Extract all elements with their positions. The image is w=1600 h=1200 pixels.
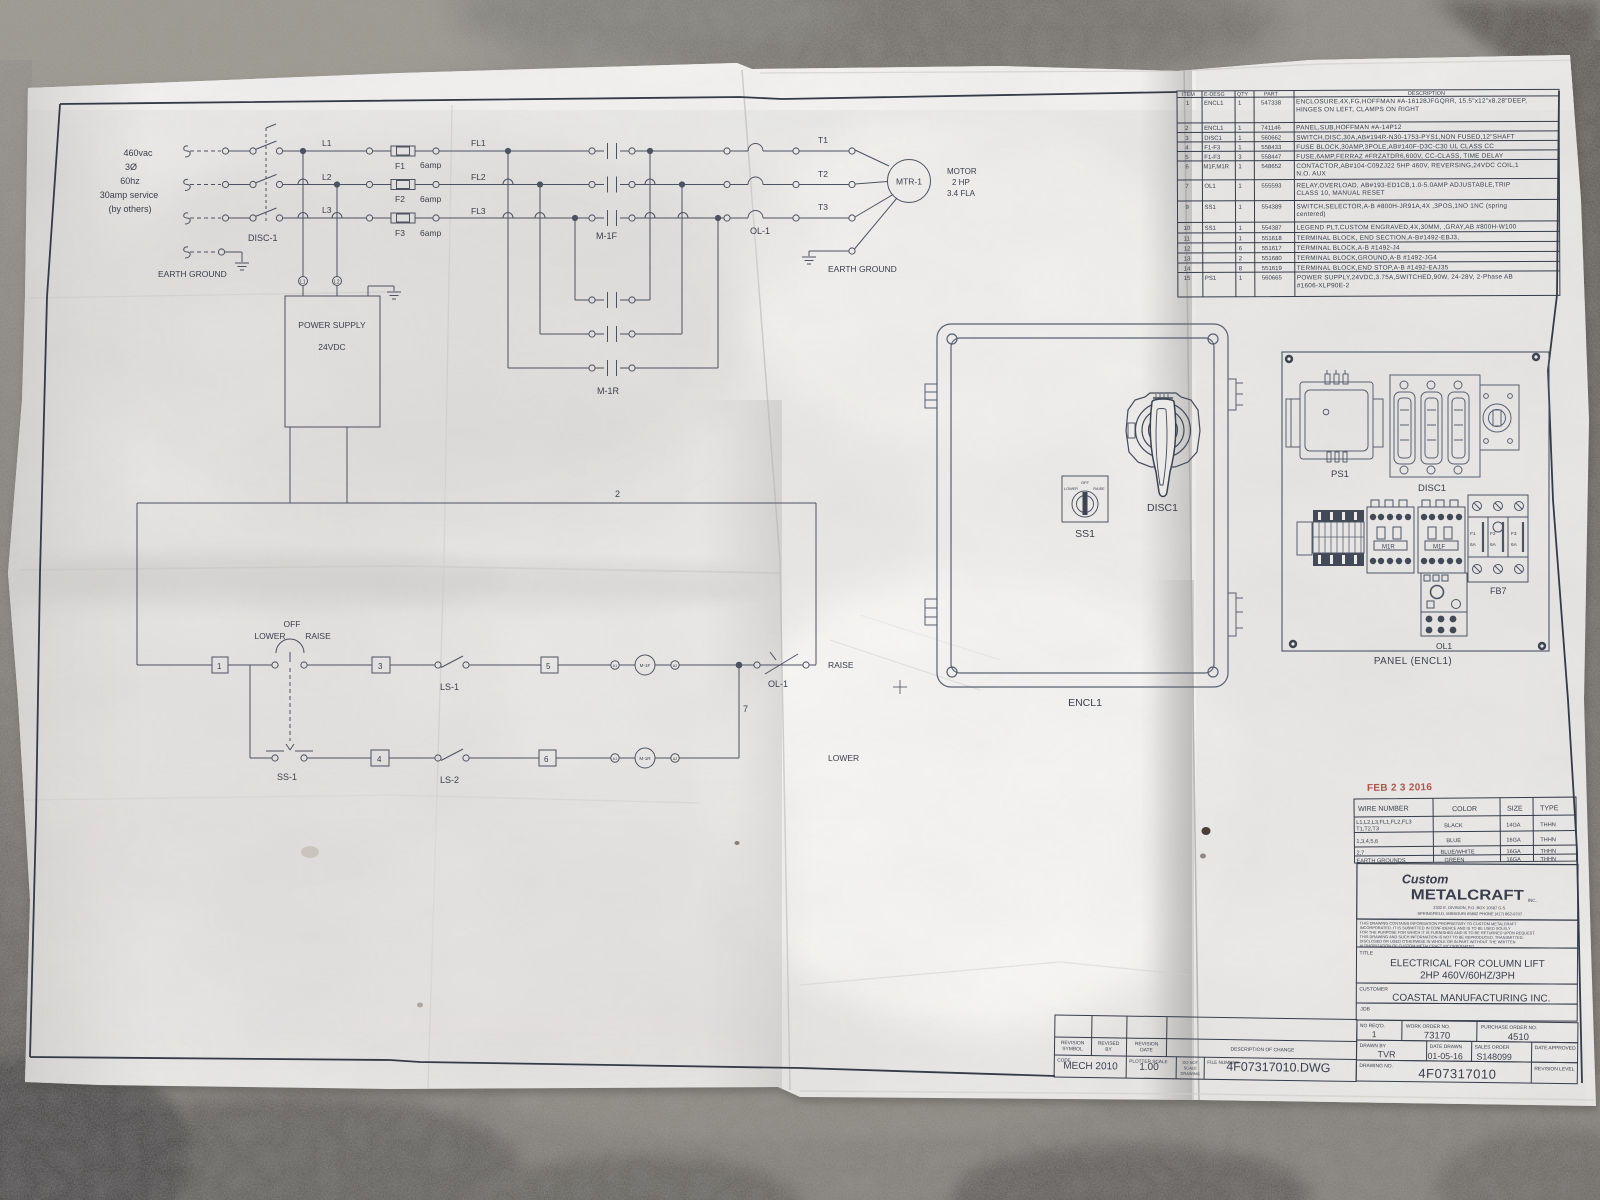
svg-text:BLUE/WHITE: BLUE/WHITE xyxy=(1440,849,1475,855)
svg-text:S148099: S148099 xyxy=(1477,1051,1512,1061)
svg-text:A1: A1 xyxy=(613,757,617,761)
svg-text:DISC1: DISC1 xyxy=(1204,136,1222,142)
svg-text:4510: 4510 xyxy=(1508,1032,1529,1043)
svg-text:16GA: 16GA xyxy=(1506,849,1521,855)
svg-text:THHN: THHN xyxy=(1540,822,1556,828)
svg-text:RAISE: RAISE xyxy=(1093,487,1105,491)
svg-text:LS-2: LS-2 xyxy=(440,775,459,785)
svg-text:ENCL1: ENCL1 xyxy=(1204,126,1224,132)
svg-text:1: 1 xyxy=(1372,1029,1377,1039)
svg-text:ELECTRICAL FOR COLUMN LIFT: ELECTRICAL FOR COLUMN LIFT xyxy=(1390,958,1545,970)
svg-text:3: 3 xyxy=(378,662,383,671)
svg-text:POWER SUPPLY: POWER SUPPLY xyxy=(298,320,366,330)
svg-text:PANEL (ENCL1): PANEL (ENCL1) xyxy=(1374,656,1452,667)
svg-text:551618: 551618 xyxy=(1262,236,1283,242)
svg-text:FUSE,6AMP,FERRAZ #FRZATDR6,60: FUSE,6AMP,FERRAZ #FRZATDR6,600V, CC-CLAS… xyxy=(1296,153,1504,161)
svg-text:SCALE: SCALE xyxy=(1184,1065,1198,1070)
svg-text:SPRINGFIELD, MISSOURI 65802: SPRINGFIELD, MISSOURI 65802 PHONE (417) … xyxy=(1417,911,1523,917)
svg-text:558447: 558447 xyxy=(1261,155,1282,161)
svg-text:REVISION LEVEL: REVISION LEVEL xyxy=(1534,1066,1574,1072)
svg-text:centered): centered) xyxy=(1297,211,1326,218)
svg-text:CUSTOMER: CUSTOMER xyxy=(1359,987,1388,993)
svg-text:DATE APPROVED: DATE APPROVED xyxy=(1535,1045,1576,1052)
svg-text:6A: 6A xyxy=(1490,542,1497,548)
svg-text:2332 E. DIVISION, P.O. BOX 105: 2332 E. DIVISION, P.O. BOX 10587 G.S. xyxy=(1433,905,1506,910)
svg-text:L2: L2 xyxy=(322,172,332,182)
svg-text:741146: 741146 xyxy=(1261,126,1281,132)
svg-text:548652: 548652 xyxy=(1261,164,1282,170)
svg-text:DATE: DATE xyxy=(1140,1047,1154,1053)
svg-text:6amp: 6amp xyxy=(420,160,442,170)
svg-text:12: 12 xyxy=(1184,246,1191,252)
svg-text:DESCRIPTION OF CHANGE: DESCRIPTION OF CHANGE xyxy=(1231,1047,1296,1054)
svg-text:HINGES ON LEFT, CLAMPS ON RIGH: HINGES ON LEFT, CLAMPS ON RIGHT xyxy=(1296,106,1419,114)
svg-text:METALCRAFT: METALCRAFT xyxy=(1411,887,1524,904)
svg-text:ENCLOSURE,4X,FG,HOFFMAN #A-16: ENCLOSURE,4X,FG,HOFFMAN #A-16128JFGQRR, … xyxy=(1296,97,1527,105)
svg-text:M-1R: M-1R xyxy=(639,756,651,761)
svg-text:560665: 560665 xyxy=(1262,276,1283,282)
svg-text:10: 10 xyxy=(1184,226,1191,232)
svg-text:T1,T2,T3: T1,T2,T3 xyxy=(1356,826,1379,832)
svg-text:1: 1 xyxy=(217,662,222,671)
svg-text:1.00: 1.00 xyxy=(1139,1062,1159,1073)
svg-text:DRAWING: DRAWING xyxy=(1181,1071,1200,1076)
svg-text:N.O. AUX: N.O. AUX xyxy=(1296,170,1326,177)
svg-text:MECH 2010: MECH 2010 xyxy=(1063,1061,1118,1073)
svg-text:FL2: FL2 xyxy=(471,172,486,182)
svg-text:14: 14 xyxy=(1184,266,1191,272)
svg-text:FUSE BLOCK,30AMP,3POLE,AB#140: FUSE BLOCK,30AMP,3POLE,AB#140F-D3C-C30 U… xyxy=(1296,143,1494,151)
svg-text:TITLE: TITLE xyxy=(1360,951,1374,957)
svg-text:73170: 73170 xyxy=(1424,1030,1451,1041)
svg-text:15: 15 xyxy=(1184,276,1191,282)
svg-text:6amp: 6amp xyxy=(420,228,442,238)
svg-text:POWER SUPPLY,24VDC,3.75A,SWIT: POWER SUPPLY,24VDC,3.75A,SWITCHED,90W, 2… xyxy=(1297,274,1513,282)
svg-text:3.4 FLA: 3.4 FLA xyxy=(947,189,976,198)
svg-text:Custom: Custom xyxy=(1402,872,1449,886)
svg-text:L3: L3 xyxy=(322,205,332,215)
svg-text:F1-F3: F1-F3 xyxy=(1204,145,1221,151)
svg-text:3Ø: 3Ø xyxy=(125,162,137,172)
svg-text:16GA: 16GA xyxy=(1507,857,1522,863)
svg-text:30amp service: 30amp service xyxy=(100,190,159,200)
svg-text:6amp: 6amp xyxy=(420,194,442,204)
svg-text:TERMINAL BLOCK,A-B #1492-J4: TERMINAL BLOCK,A-B #1492-J4 xyxy=(1297,245,1400,252)
svg-text:L1,L2,L3,FL1,FL2,FL3: L1,L2,L3,FL1,FL2,FL3 xyxy=(1356,819,1411,825)
svg-text:FB7: FB7 xyxy=(1490,586,1507,596)
svg-text:6: 6 xyxy=(544,755,549,764)
svg-text:ENCL1: ENCL1 xyxy=(1068,697,1102,709)
svg-text:DISC-1: DISC-1 xyxy=(248,233,278,243)
svg-text:6A: 6A xyxy=(1511,542,1518,548)
svg-text:(by others): (by others) xyxy=(108,204,151,214)
svg-text:551619: 551619 xyxy=(1262,266,1283,272)
svg-text:5: 5 xyxy=(546,662,551,671)
svg-text:L2: L2 xyxy=(334,280,340,286)
svg-text:THHN: THHN xyxy=(1540,849,1556,855)
svg-text:F2: F2 xyxy=(1490,531,1496,537)
svg-text:COASTAL MANUFACTURING INC.: COASTAL MANUFACTURING INC. xyxy=(1392,993,1550,1005)
svg-text:SYMBOL: SYMBOL xyxy=(1062,1046,1083,1052)
svg-text:BY: BY xyxy=(1105,1047,1112,1053)
svg-text:LOWER: LOWER xyxy=(1064,487,1078,491)
svg-text:PURCHASE ORDER NO.: PURCHASE ORDER NO. xyxy=(1481,1025,1537,1032)
svg-text:FL3: FL3 xyxy=(471,206,486,216)
svg-text:REVISION: REVISION xyxy=(1135,1041,1159,1047)
svg-text:MTR-1: MTR-1 xyxy=(896,177,922,187)
svg-text:TERMINAL BLOCK,GROUND,A-B #1: TERMINAL BLOCK,GROUND,A-B #1492-JG4 xyxy=(1297,254,1437,262)
svg-text:JOB: JOB xyxy=(1360,1007,1370,1013)
svg-text:F2: F2 xyxy=(395,194,405,204)
svg-text:SIZE: SIZE xyxy=(1507,806,1523,813)
svg-text:RAISE: RAISE xyxy=(828,660,854,670)
svg-text:T3: T3 xyxy=(818,202,828,212)
svg-text:LOWER: LOWER xyxy=(254,631,285,641)
svg-text:01-05-16: 01-05-16 xyxy=(1428,1051,1463,1061)
svg-text:2,7: 2,7 xyxy=(1356,850,1364,856)
svg-text:SALES ORDER: SALES ORDER xyxy=(1475,1044,1510,1050)
svg-text:PART: PART xyxy=(1264,92,1279,98)
svg-text:OFF: OFF xyxy=(284,619,301,629)
svg-text:OL1: OL1 xyxy=(1436,641,1452,651)
svg-text:DESCRIPTION: DESCRIPTION xyxy=(1408,91,1445,97)
svg-text:4F07317010: 4F07317010 xyxy=(1418,1066,1496,1082)
svg-text:F3: F3 xyxy=(395,228,405,238)
svg-text:PS1: PS1 xyxy=(1205,276,1217,282)
svg-text:SS1: SS1 xyxy=(1075,528,1095,540)
svg-text:QTY: QTY xyxy=(1237,92,1249,98)
svg-text:DRAWING NO.: DRAWING NO. xyxy=(1359,1063,1393,1069)
svg-text:T2: T2 xyxy=(818,169,828,179)
svg-text:OFF: OFF xyxy=(1081,480,1090,485)
svg-text:460vac: 460vac xyxy=(123,148,153,158)
svg-text:EARTH GROUND: EARTH GROUND xyxy=(158,269,227,279)
svg-text:OL-1: OL-1 xyxy=(768,679,788,689)
svg-text:M-1F: M-1F xyxy=(640,663,651,668)
svg-text:7: 7 xyxy=(743,704,748,714)
svg-text:DATE DRAWN: DATE DRAWN xyxy=(1430,1044,1463,1050)
svg-text:T1: T1 xyxy=(818,135,828,145)
svg-text:WORK ORDER NO.: WORK ORDER NO. xyxy=(1406,1024,1450,1031)
svg-text:THHN: THHN xyxy=(1540,837,1556,843)
svg-text:4F07317010.DWG: 4F07317010.DWG xyxy=(1226,1060,1330,1076)
svg-text:TERMINAL BLOCK,END STOP,A-B: TERMINAL BLOCK,END STOP,A-B #1492-EAJ35 xyxy=(1297,264,1449,272)
svg-text:DISC1: DISC1 xyxy=(1418,483,1446,494)
svg-text:INC.: INC. xyxy=(1528,898,1537,903)
svg-text:ITEM: ITEM xyxy=(1182,92,1195,98)
svg-text:REVISED: REVISED xyxy=(1098,1041,1120,1047)
svg-text:REVISION: REVISION xyxy=(1061,1040,1085,1046)
svg-text:SS1: SS1 xyxy=(1204,205,1216,211)
svg-text:558433: 558433 xyxy=(1261,145,1282,151)
svg-text:WIRE NUMBER: WIRE NUMBER xyxy=(1358,806,1409,813)
svg-text:M-1F: M-1F xyxy=(596,231,617,241)
svg-text:24VDC: 24VDC xyxy=(318,342,345,352)
svg-text:BLUE: BLUE xyxy=(1446,838,1461,844)
svg-text:GREEN: GREEN xyxy=(1445,858,1465,864)
svg-text:DO NOT: DO NOT xyxy=(1182,1060,1198,1065)
svg-text:EARTH GROUND: EARTH GROUND xyxy=(828,264,897,274)
svg-text:LEGEND PLT,CUSTOM ENGRAVED,4: LEGEND PLT,CUSTOM ENGRAVED,4X,30MM, ,GRA… xyxy=(1297,224,1517,232)
svg-text:FL1: FL1 xyxy=(471,138,486,148)
svg-text:A2: A2 xyxy=(673,664,677,668)
svg-text:2HP 460V/60HZ/3PH: 2HP 460V/60HZ/3PH xyxy=(1420,970,1515,981)
svg-text:THHN: THHN xyxy=(1541,857,1557,863)
svg-text:547338: 547338 xyxy=(1261,101,1282,107)
svg-text:LS-1: LS-1 xyxy=(440,682,459,692)
svg-text:554387: 554387 xyxy=(1262,226,1283,232)
svg-text:11: 11 xyxy=(1184,236,1191,242)
svg-text:4: 4 xyxy=(377,755,382,764)
svg-text:L1: L1 xyxy=(300,280,306,286)
svg-text:60hz: 60hz xyxy=(120,176,140,186)
svg-text:1,3,4,5,6: 1,3,4,5,6 xyxy=(1356,839,1378,845)
svg-text:551617: 551617 xyxy=(1262,246,1283,252)
svg-text:#1606-XLP90E-2: #1606-XLP90E-2 xyxy=(1297,282,1350,289)
svg-text:A2: A2 xyxy=(673,757,677,761)
svg-text:DISC1: DISC1 xyxy=(1147,502,1178,514)
svg-text:FEB 2 3 2016: FEB 2 3 2016 xyxy=(1367,782,1433,794)
svg-text:BLACK: BLACK xyxy=(1444,823,1463,829)
svg-text:TERMINAL BLOCK, END SECTION: TERMINAL BLOCK, END SECTION,A-B#1492-EBJ… xyxy=(1297,234,1460,242)
svg-text:F1: F1 xyxy=(395,161,405,171)
svg-text:RELAY,OVERLOAD, AB#193-ED1CB,: RELAY,OVERLOAD, AB#193-ED1CB,1.0-5.0AMP … xyxy=(1296,182,1510,190)
svg-text:L1: L1 xyxy=(322,138,332,148)
svg-text:OL-1: OL-1 xyxy=(750,226,770,236)
svg-text:F1: F1 xyxy=(1470,531,1476,537)
svg-text:F1-F3: F1-F3 xyxy=(1204,155,1221,161)
svg-text:M1R: M1R xyxy=(1382,545,1395,551)
svg-text:M1F,M1R: M1F,M1R xyxy=(1203,164,1229,170)
svg-text:MOTOR: MOTOR xyxy=(947,167,977,176)
svg-text:555593: 555593 xyxy=(1261,184,1282,190)
svg-text:SS1: SS1 xyxy=(1205,226,1217,232)
svg-text:551680: 551680 xyxy=(1262,256,1283,262)
svg-text:554389: 554389 xyxy=(1261,205,1282,211)
svg-text:ENCL1: ENCL1 xyxy=(1204,101,1224,107)
svg-text:M1F: M1F xyxy=(1433,545,1445,551)
svg-text:A1: A1 xyxy=(613,664,617,668)
svg-text:560662: 560662 xyxy=(1261,136,1282,142)
svg-text:14GA: 14GA xyxy=(1506,823,1521,829)
svg-text:CONTACTOR,AB#104-C09ZJ22 5HP: CONTACTOR,AB#104-C09ZJ22 5HP 460V, REVER… xyxy=(1296,162,1519,170)
svg-text:LOWER: LOWER xyxy=(828,753,859,763)
svg-text:16GA: 16GA xyxy=(1506,838,1521,844)
svg-text:E-DESG: E-DESG xyxy=(1204,92,1225,98)
svg-text:2: 2 xyxy=(615,489,620,499)
svg-text:2 HP: 2 HP xyxy=(952,178,970,187)
svg-text:6A: 6A xyxy=(1470,542,1477,548)
svg-text:COLOR: COLOR xyxy=(1452,806,1477,813)
svg-text:13: 13 xyxy=(1184,256,1191,262)
svg-text:OL1: OL1 xyxy=(1204,184,1216,190)
svg-text:RAISE: RAISE xyxy=(305,631,331,641)
svg-text:SWITCH,SELECTOR,A-B #800H-JR9: SWITCH,SELECTOR,A-B #800H-JR91A,4X ,3POS… xyxy=(1296,203,1507,211)
svg-text:TYPE: TYPE xyxy=(1540,805,1559,812)
svg-text:SS-1: SS-1 xyxy=(277,772,297,782)
svg-text:TVR: TVR xyxy=(1378,1049,1397,1059)
svg-text:PS1: PS1 xyxy=(1331,469,1349,480)
svg-text:M-1R: M-1R xyxy=(597,386,619,396)
svg-text:CLASS 10, MANUAL RESET: CLASS 10, MANUAL RESET xyxy=(1296,190,1384,197)
svg-text:F3: F3 xyxy=(1511,531,1517,537)
svg-text:SWITCH,DISC,30A,AB#194R-N30-17: SWITCH,DISC,30A,AB#194R-N30-1753-PYS1,NO… xyxy=(1296,134,1515,142)
svg-text:PANEL,SUB,HOFFMAN #A-14P12: PANEL,SUB,HOFFMAN #A-14P12 xyxy=(1296,124,1402,131)
